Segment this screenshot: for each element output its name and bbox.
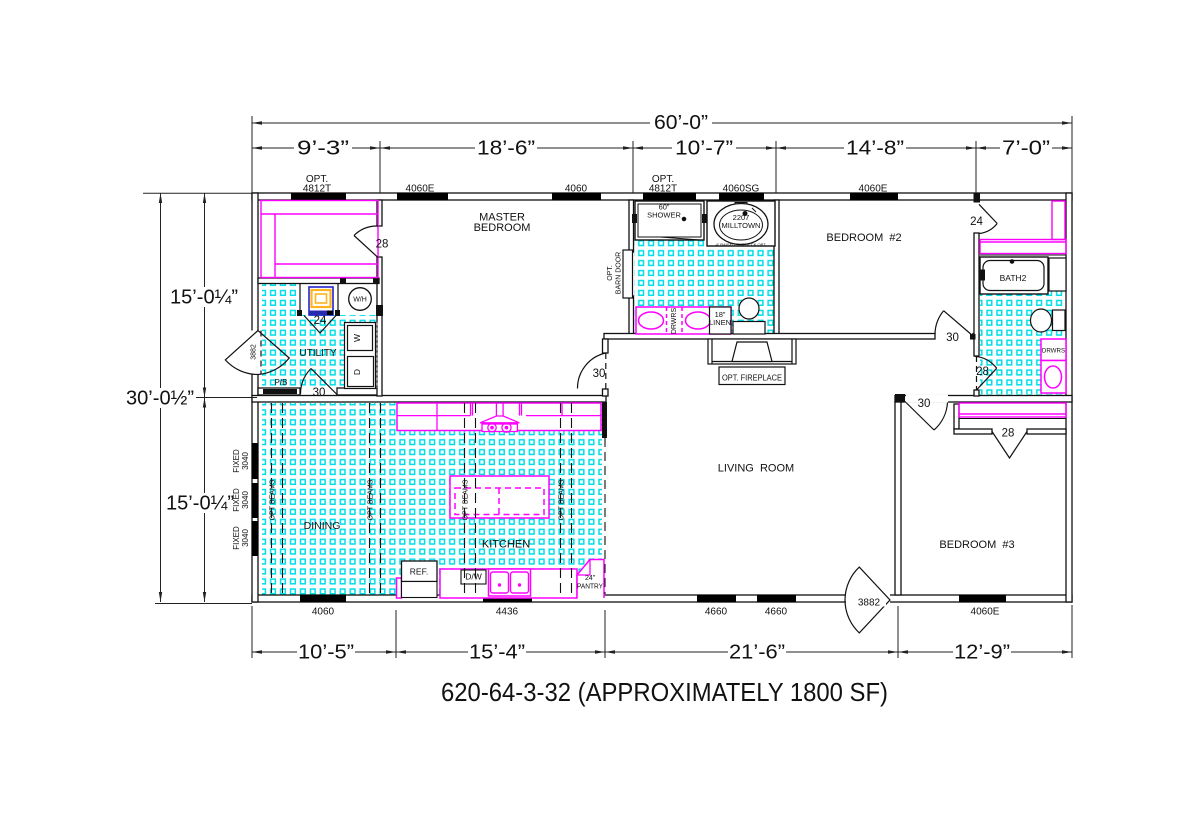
svg-text:3040: 3040	[241, 491, 250, 509]
svg-text:15’-4”: 15’-4”	[469, 642, 525, 664]
svg-text:LIVING ROOM: LIVING ROOM	[718, 463, 794, 475]
svg-text:12’-9”: 12’-9”	[954, 642, 1010, 664]
svg-text:BEDROOM #3: BEDROOM #3	[939, 539, 1014, 551]
svg-text:FIXED: FIXED	[232, 449, 241, 473]
svg-text:620-64-3-32 (APPROXIMATELY 180: 620-64-3-32 (APPROXIMATELY 1800 SF)	[441, 677, 888, 707]
svg-text:PANTRY: PANTRY	[577, 584, 603, 591]
svg-text:10’-7”: 10’-7”	[675, 138, 733, 160]
svg-text:4060: 4060	[565, 184, 588, 195]
svg-text:10’-5”: 10’-5”	[298, 642, 354, 664]
svg-text:28: 28	[1002, 428, 1015, 440]
svg-text:OPT. FIREPLACE: OPT. FIREPLACE	[722, 374, 782, 383]
svg-text:BATH2: BATH2	[1000, 273, 1027, 283]
svg-text:4660: 4660	[765, 607, 788, 618]
svg-text:OPT BEAMS: OPT BEAMS	[270, 479, 277, 520]
svg-text:9’-3”: 9’-3”	[297, 138, 349, 160]
svg-text:SHOWER: SHOWER	[647, 211, 681, 220]
svg-text:DRWRS: DRWRS	[671, 308, 678, 335]
svg-text:30: 30	[918, 398, 931, 410]
svg-text:30: 30	[593, 368, 606, 380]
svg-text:21’-6”: 21’-6”	[729, 642, 785, 664]
svg-text:18’-6”: 18’-6”	[477, 138, 535, 160]
svg-text:7’-0”: 7’-0”	[1002, 138, 1050, 160]
svg-text:4060SG: 4060SG	[723, 184, 760, 195]
svg-text:OPT BEAMS: OPT BEAMS	[559, 479, 566, 520]
svg-text:14’-8”: 14’-8”	[846, 138, 904, 160]
svg-text:4060: 4060	[312, 607, 335, 618]
svg-text:REF.: REF.	[410, 567, 428, 577]
svg-text:DRWRS: DRWRS	[1042, 348, 1065, 355]
svg-text:4436: 4436	[496, 607, 519, 618]
svg-text:MILLTOWN: MILLTOWN	[722, 221, 761, 230]
svg-text:28: 28	[376, 239, 389, 251]
svg-text:DINING: DINING	[304, 520, 341, 532]
svg-text:FIXED: FIXED	[232, 526, 241, 550]
svg-text:60’-0”: 60’-0”	[654, 112, 708, 134]
svg-text:3882: 3882	[251, 344, 258, 360]
svg-text:4060E: 4060E	[971, 607, 1000, 618]
svg-text:KITCHEN: KITCHEN	[482, 539, 530, 551]
svg-text:BARN DOOR: BARN DOOR	[616, 252, 623, 294]
svg-text:4812T: 4812T	[303, 184, 331, 195]
svg-text:15’-0¼”: 15’-0¼”	[166, 493, 234, 515]
svg-text:24”: 24”	[585, 575, 596, 582]
svg-text:OPT.: OPT.	[607, 265, 614, 281]
svg-text:P/B: P/B	[275, 378, 288, 387]
svg-text:30’-0½”: 30’-0½”	[126, 388, 194, 410]
svg-text:D/W: D/W	[465, 572, 482, 582]
svg-text:W/H: W/H	[353, 297, 367, 304]
svg-text:BEDROOM #2: BEDROOM #2	[826, 232, 901, 244]
svg-text:3040: 3040	[241, 529, 250, 547]
svg-text:4060E: 4060E	[406, 184, 435, 195]
svg-text:LINEN: LINEN	[709, 318, 731, 327]
svg-text:30: 30	[313, 387, 326, 399]
svg-text:4812T: 4812T	[649, 184, 677, 195]
svg-text:3882: 3882	[858, 598, 881, 609]
svg-text:UTILITY: UTILITY	[299, 348, 337, 359]
svg-text:4060E: 4060E	[859, 184, 888, 195]
svg-text:4660: 4660	[705, 607, 728, 618]
svg-text:15’-0¼”: 15’-0¼”	[170, 287, 238, 309]
svg-text:OPT BEAMS: OPT BEAMS	[368, 479, 375, 520]
svg-text:OPT BEAMS: OPT BEAMS	[463, 479, 470, 520]
svg-text:30: 30	[946, 332, 959, 344]
svg-text:BEDROOM: BEDROOM	[474, 222, 531, 234]
svg-text:4” RAISED TUB DECK OPT.: 4” RAISED TUB DECK OPT.	[716, 242, 767, 247]
svg-text:D: D	[352, 369, 362, 375]
svg-text:FIXED: FIXED	[232, 488, 241, 512]
svg-text:24: 24	[314, 315, 327, 327]
svg-text:3040: 3040	[241, 452, 250, 470]
svg-text:28: 28	[976, 366, 989, 378]
svg-text:24: 24	[970, 216, 983, 228]
svg-text:W: W	[352, 334, 362, 342]
